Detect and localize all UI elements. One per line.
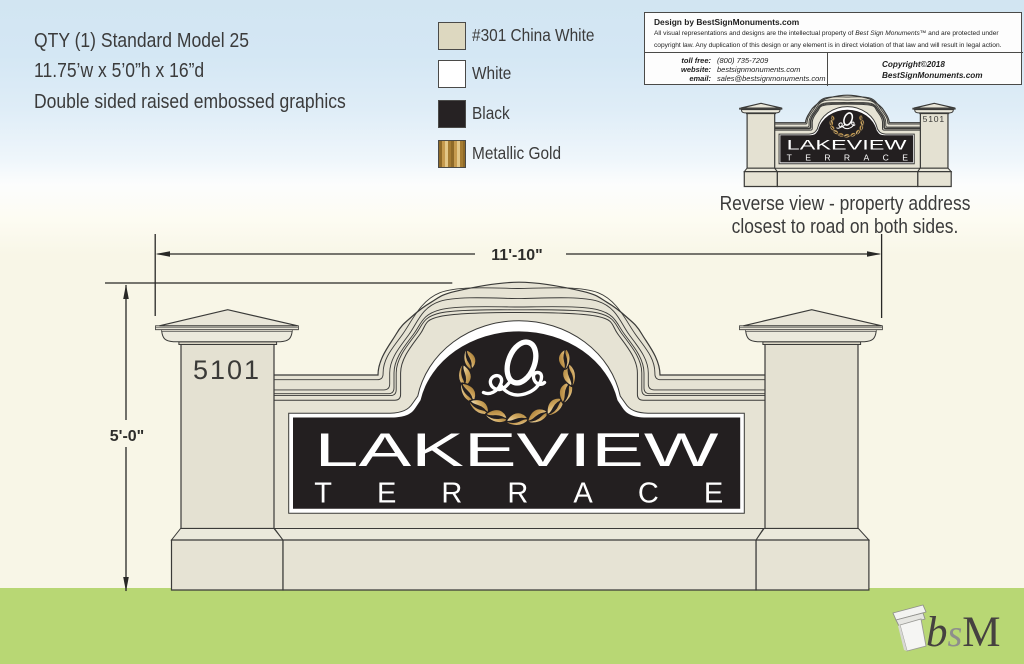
svg-text:5'-0": 5'-0" [110, 428, 145, 445]
svg-text:5101: 5101 [923, 114, 945, 124]
svg-text:5101: 5101 [193, 355, 261, 385]
svg-text:LAKEVIEW: LAKEVIEW [315, 423, 720, 476]
svg-text:11'-10": 11'-10" [491, 247, 542, 264]
svg-text:bsM: bsM [926, 609, 1001, 656]
